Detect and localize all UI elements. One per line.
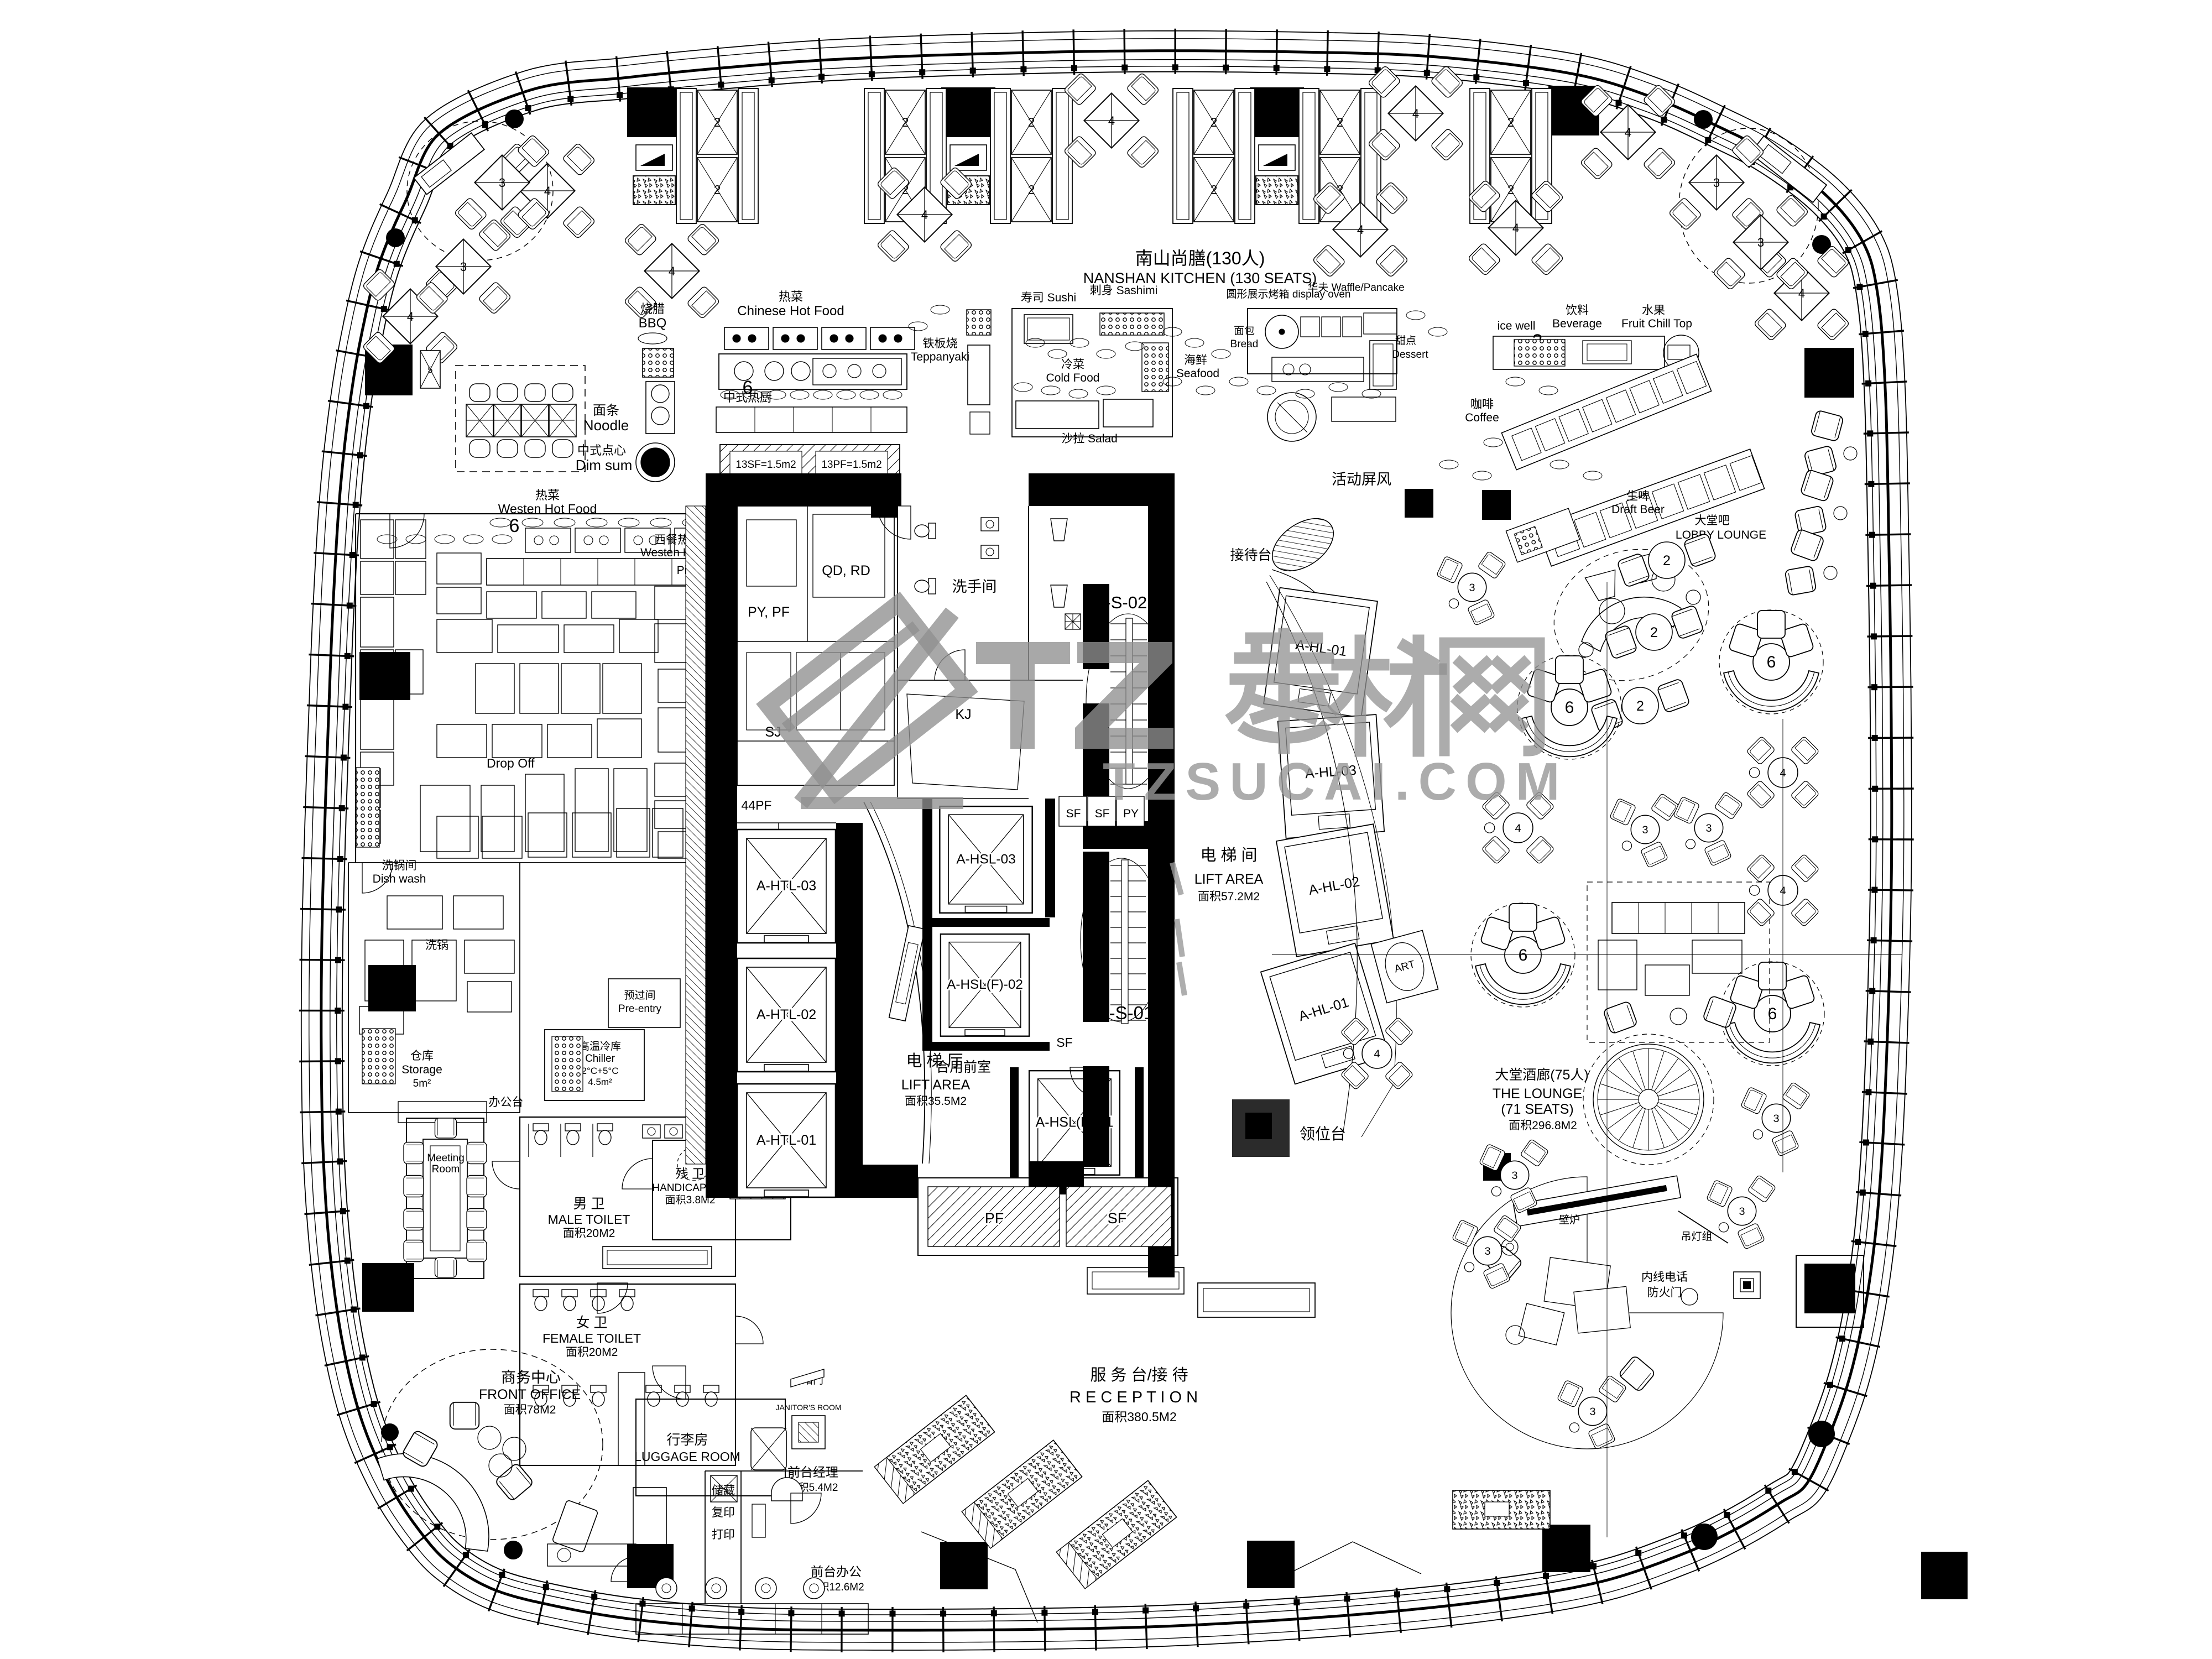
svg-text:Draft Beer: Draft Beer	[1611, 503, 1665, 516]
svg-text:3: 3	[499, 176, 505, 190]
svg-text:寿司 Sushi: 寿司 Sushi	[1021, 291, 1076, 304]
svg-text:女 卫: 女 卫	[576, 1315, 608, 1331]
svg-text:R E C E P T I O N: R E C E P T I O N	[1070, 1389, 1198, 1406]
svg-text:LUGGAGE ROOM: LUGGAGE ROOM	[634, 1449, 740, 1464]
svg-text:3: 3	[1713, 176, 1720, 190]
svg-text:13SF=1.5m2: 13SF=1.5m2	[735, 459, 796, 471]
svg-text:2: 2	[1636, 698, 1644, 714]
svg-text:面积380.5M2: 面积380.5M2	[1102, 1410, 1177, 1424]
svg-text:2: 2	[1028, 182, 1035, 197]
svg-text:6: 6	[509, 515, 520, 536]
svg-text:大堂吧: 大堂吧	[1695, 514, 1730, 527]
svg-text:LIFT AREA: LIFT AREA	[901, 1077, 971, 1093]
svg-text:Pre-entry: Pre-entry	[618, 1003, 662, 1015]
svg-text:SF: SF	[1066, 807, 1081, 820]
svg-text:QD, RD: QD, RD	[822, 563, 870, 578]
svg-text:活动屏风: 活动屏风	[1332, 471, 1391, 488]
svg-text:4: 4	[1108, 114, 1115, 128]
svg-text:服 务 台/接 待: 服 务 台/接 待	[1090, 1366, 1188, 1384]
svg-text:2: 2	[714, 115, 721, 129]
svg-text:面积78M2: 面积78M2	[504, 1404, 556, 1416]
svg-text:4: 4	[1798, 286, 1805, 300]
svg-text:下: 下	[1153, 921, 1167, 937]
svg-text:LIFT AREA: LIFT AREA	[1194, 872, 1264, 887]
svg-text:高温冷库: 高温冷库	[579, 1040, 621, 1052]
svg-text:JANITOR'S ROOM: JANITOR'S ROOM	[775, 1403, 841, 1412]
svg-text:4: 4	[1357, 223, 1364, 237]
svg-text:内线电话: 内线电话	[1641, 1271, 1688, 1284]
svg-text:KJ: KJ	[955, 707, 971, 722]
svg-text:Cold Food: Cold Food	[1046, 372, 1100, 384]
svg-text:SF: SF	[1108, 1210, 1127, 1227]
svg-text:热菜: 热菜	[535, 488, 560, 502]
svg-text:4: 4	[1512, 221, 1519, 235]
svg-text:热菜: 热菜	[779, 290, 803, 304]
svg-text:甜点: 甜点	[1395, 335, 1416, 347]
svg-text:残 卫: 残 卫	[676, 1166, 705, 1181]
svg-text:仓库: 仓库	[410, 1050, 434, 1062]
svg-text:预过间: 预过间	[624, 989, 655, 1001]
svg-text:2: 2	[902, 115, 909, 129]
svg-text:Chiller: Chiller	[585, 1053, 615, 1065]
svg-text:A-S-01: A-S-01	[1097, 1003, 1154, 1023]
svg-text:华夫 Waffle/Pancake: 华夫 Waffle/Pancake	[1307, 281, 1404, 294]
svg-text:Beverage: Beverage	[1552, 317, 1602, 330]
svg-text:面积20M2: 面积20M2	[566, 1346, 618, 1359]
svg-text:5m²: 5m²	[413, 1078, 431, 1089]
svg-text:4: 4	[1625, 126, 1631, 139]
svg-text:洗锅: 洗锅	[425, 939, 448, 952]
svg-text:A-HTL-03: A-HTL-03	[757, 878, 816, 894]
svg-text:打印: 打印	[712, 1528, 735, 1541]
svg-text:5: 5	[428, 366, 433, 375]
svg-text:44PF: 44PF	[742, 798, 772, 812]
svg-text:2: 2	[1337, 115, 1344, 129]
svg-text:4: 4	[669, 264, 675, 278]
svg-text:面积20M2: 面积20M2	[563, 1227, 615, 1240]
svg-text:ice well: ice well	[1498, 320, 1536, 332]
svg-text:前台经理: 前台经理	[787, 1465, 838, 1479]
svg-text:Fruit Chill Top: Fruit Chill Top	[1621, 317, 1692, 330]
svg-text:3: 3	[1469, 582, 1475, 594]
svg-text:面积57.2M2: 面积57.2M2	[1198, 890, 1260, 903]
svg-text:沙拉 Salad: 沙拉 Salad	[1061, 432, 1118, 445]
svg-text:4: 4	[407, 310, 414, 324]
svg-text:3: 3	[1642, 824, 1648, 836]
svg-text:4: 4	[921, 208, 928, 222]
svg-text:Bread: Bread	[1230, 338, 1259, 350]
svg-text:Teppanyaki: Teppanyaki	[911, 351, 969, 363]
svg-text:13PF=1.5m2: 13PF=1.5m2	[821, 459, 881, 471]
svg-text:3: 3	[1757, 236, 1764, 249]
svg-text:Dessert: Dessert	[1392, 349, 1428, 361]
svg-text:(71 SEATS): (71 SEATS)	[1501, 1102, 1574, 1117]
svg-text:Dish wash: Dish wash	[373, 873, 426, 885]
svg-text:2: 2	[714, 182, 721, 197]
svg-text:FEMALE TOILET: FEMALE TOILET	[542, 1331, 641, 1345]
svg-text:MALE TOILET: MALE TOILET	[548, 1212, 630, 1227]
svg-text:上: 上	[1092, 875, 1106, 891]
svg-text:洗手间: 洗手间	[952, 578, 997, 595]
svg-text:大堂酒廊(75人): 大堂酒廊(75人)	[1495, 1067, 1588, 1083]
svg-text:Coffee: Coffee	[1465, 411, 1499, 424]
svg-text:冷菜: 冷菜	[1061, 358, 1084, 371]
svg-text:2: 2	[1028, 115, 1035, 129]
svg-text:Drop Off: Drop Off	[487, 756, 535, 770]
svg-text:BBQ: BBQ	[639, 316, 667, 331]
svg-text:前台办公: 前台办公	[811, 1564, 862, 1579]
svg-text:Chinese Hot Food: Chinese Hot Food	[737, 304, 844, 319]
svg-text:下: 下	[1153, 624, 1167, 639]
svg-text:Noodle: Noodle	[583, 417, 629, 434]
svg-text:商务中心: 商务中心	[501, 1369, 561, 1386]
svg-text:Storage: Storage	[401, 1063, 442, 1076]
svg-text:咖啡: 咖啡	[1470, 398, 1494, 411]
svg-text:4: 4	[1374, 1048, 1380, 1060]
svg-text:3: 3	[460, 260, 467, 274]
svg-text:防火门: 防火门	[1647, 1286, 1682, 1299]
svg-text:4: 4	[544, 184, 551, 198]
svg-text:2: 2	[1650, 625, 1658, 640]
svg-text:铁板烧: 铁板烧	[923, 337, 958, 350]
svg-text:电 梯 间: 电 梯 间	[1200, 846, 1257, 864]
svg-text:NANSHAN KITCHEN (130 SEATS): NANSHAN KITCHEN (130 SEATS)	[1083, 270, 1317, 286]
svg-text:PF: PF	[985, 1210, 1004, 1227]
svg-text:面积296.8M2: 面积296.8M2	[1509, 1119, 1577, 1132]
svg-text:Seafood: Seafood	[1176, 367, 1219, 380]
svg-text:生啤: 生啤	[1626, 490, 1650, 503]
svg-text:面积35.5M2: 面积35.5M2	[905, 1095, 967, 1108]
svg-text:A-S-02: A-S-02	[1094, 593, 1147, 612]
svg-text:3: 3	[1589, 1406, 1595, 1418]
svg-text:TZSUCAI.COM: TZSUCAI.COM	[1103, 752, 1569, 811]
svg-text:2: 2	[1507, 182, 1515, 197]
svg-text:领位台: 领位台	[1300, 1125, 1346, 1142]
svg-text:A-HSL-03: A-HSL-03	[956, 852, 1015, 867]
svg-text:3: 3	[1511, 1170, 1517, 1182]
svg-text:3: 3	[1773, 1113, 1779, 1125]
svg-text:A-HTL-01: A-HTL-01	[757, 1133, 816, 1148]
svg-text:A-HSL(F)-02: A-HSL(F)-02	[947, 977, 1023, 992]
svg-text:Dim sum: Dim sum	[576, 457, 633, 473]
svg-text:中式点心: 中式点心	[577, 444, 626, 457]
svg-text:2: 2	[1211, 115, 1218, 129]
svg-text:A-HTL-02: A-HTL-02	[757, 1007, 816, 1022]
svg-text:4.5m²: 4.5m²	[588, 1077, 612, 1087]
svg-text:烧腊: 烧腊	[640, 302, 665, 316]
svg-text:PY, PF: PY, PF	[748, 604, 790, 620]
svg-text:面包: 面包	[1234, 325, 1255, 337]
svg-text:2: 2	[1211, 182, 1218, 197]
svg-text:南山尚膳(130人): 南山尚膳(130人)	[1135, 248, 1265, 268]
svg-text:Westen Hot Food: Westen Hot Food	[498, 502, 597, 516]
svg-text:3: 3	[1739, 1206, 1745, 1218]
svg-text:3: 3	[1484, 1245, 1490, 1258]
svg-text:4: 4	[1515, 822, 1521, 834]
svg-text:行李房: 行李房	[666, 1432, 708, 1448]
svg-text:接待台: 接待台	[1230, 547, 1271, 563]
svg-text:面条: 面条	[593, 403, 619, 418]
svg-text:办公台: 办公台	[489, 1096, 524, 1109]
svg-text:复印: 复印	[712, 1506, 735, 1519]
svg-text:3: 3	[1705, 822, 1712, 834]
svg-text:水果: 水果	[1642, 304, 1665, 317]
svg-text:Meeting: Meeting	[427, 1152, 465, 1164]
svg-text:合用前室: 合用前室	[936, 1060, 991, 1075]
svg-text:Room: Room	[432, 1164, 460, 1175]
svg-text:壁炉: 壁炉	[1559, 1214, 1580, 1226]
svg-text:2°C+5°C: 2°C+5°C	[582, 1066, 619, 1076]
svg-text:饮料: 饮料	[1566, 304, 1589, 317]
svg-text:储藏: 储藏	[712, 1484, 735, 1497]
svg-text:SF: SF	[1056, 1035, 1072, 1050]
svg-text:洗锅间: 洗锅间	[382, 859, 417, 872]
svg-text:THE LOUNGE: THE LOUNGE	[1493, 1086, 1583, 1102]
svg-text:中式热厨: 中式热厨	[723, 390, 772, 404]
svg-text:男 卫: 男 卫	[573, 1196, 605, 1212]
svg-text:2: 2	[1507, 115, 1515, 129]
svg-text:吊灯组: 吊灯组	[1681, 1230, 1712, 1243]
svg-text:海鲜: 海鲜	[1184, 354, 1207, 367]
svg-text:2: 2	[1663, 553, 1671, 568]
svg-text:4: 4	[1412, 107, 1419, 121]
svg-text:FRONT OFFICE: FRONT OFFICE	[479, 1387, 581, 1402]
